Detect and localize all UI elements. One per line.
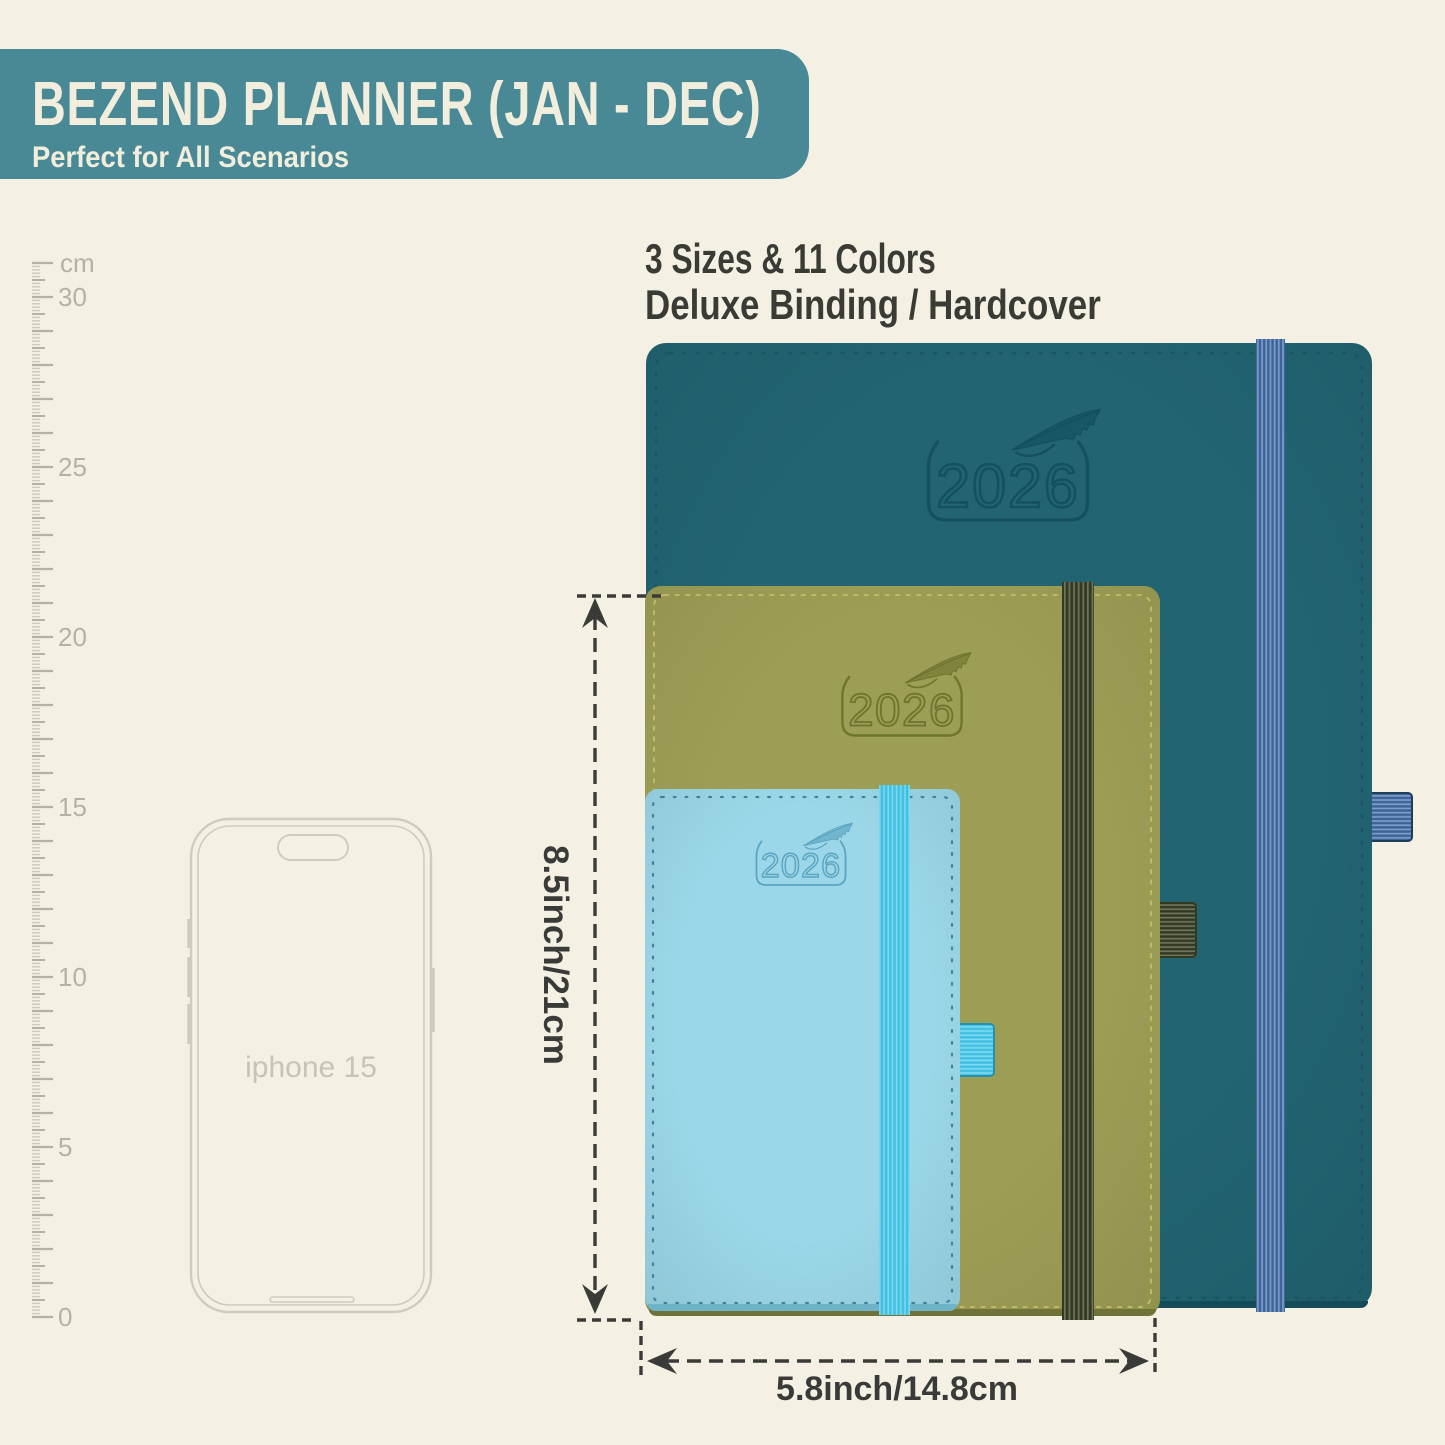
svg-text:8.5inch/21cm: 8.5inch/21cm <box>536 845 575 1065</box>
svg-text:5.8inch/14.8cm: 5.8inch/14.8cm <box>776 1370 1018 1408</box>
